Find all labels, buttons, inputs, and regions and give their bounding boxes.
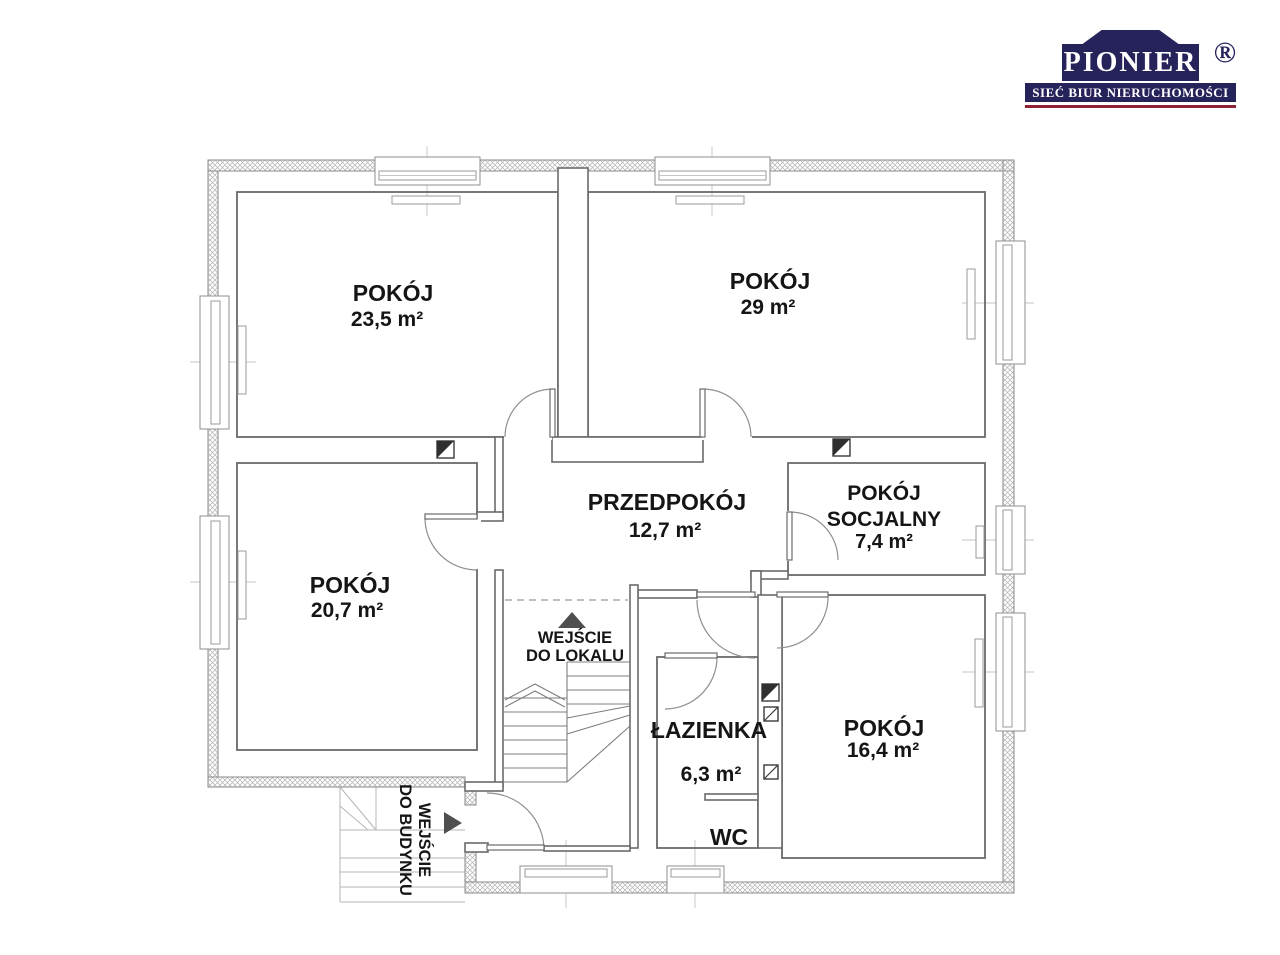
room-labels: POKÓJ 23,5 m² POKÓJ 29 m² POKÓJ 20,7 m² … <box>310 267 941 850</box>
vent-icon <box>764 765 778 779</box>
room-29-area: 29 m² <box>741 296 796 319</box>
floorplan-page: PIONIER ® SIEĆ BIUR NIERUCHOMOŚCI <box>0 0 1280 955</box>
hall-area: 12,7 m² <box>629 519 701 542</box>
building-entrance-label: WEJŚCIE DO BUDYNKU <box>396 784 434 896</box>
building-entrance-arrow-icon <box>444 812 462 834</box>
hall-name: PRZEDPOKÓJ <box>588 488 746 515</box>
bathroom-area: 6,3 m² <box>681 763 742 786</box>
door-arc-room-16-4 <box>777 597 828 648</box>
room-16-4-area: 16,4 m² <box>847 739 919 762</box>
room-20-7-name: POKÓJ <box>310 571 391 598</box>
bathroom-outline <box>657 657 758 848</box>
vent-icon <box>437 441 454 458</box>
unit-entrance-arrow-icon <box>558 612 586 628</box>
building-entrance-line2: DO BUDYNKU <box>396 784 414 896</box>
door-arc-building-entry <box>487 793 544 850</box>
room-16-4-name: POKÓJ <box>844 714 925 741</box>
socjalny-name2: SOCJALNY <box>827 508 941 531</box>
room-20-7-area: 20,7 m² <box>311 599 383 622</box>
bathroom-name: ŁAZIENKA <box>651 717 767 743</box>
vent-icon <box>762 684 779 701</box>
door-arc-room-29 <box>703 389 751 437</box>
room-23-5-name: POKÓJ <box>353 279 434 306</box>
door-arc-room-20-7 <box>425 518 477 570</box>
unit-entrance-line2: DO LOKALU <box>526 647 624 665</box>
room-23-5-area: 23,5 m² <box>351 308 423 331</box>
socjalny-area: 7,4 m² <box>855 531 913 553</box>
building-entrance-line1: WEJŚCIE <box>415 803 434 877</box>
vent-icon <box>833 439 850 456</box>
wc-name: WC <box>710 824 748 850</box>
socjalny-name1: POKÓJ <box>847 481 921 505</box>
floor-plan-drawing: POKÓJ 23,5 m² POKÓJ 29 m² POKÓJ 20,7 m² … <box>0 0 1280 955</box>
door-arc-hall-corridor <box>697 600 755 658</box>
door-arc-room-23-5 <box>505 389 553 437</box>
unit-entrance-line1: WEJŚCIE <box>538 628 612 647</box>
room-29-name: POKÓJ <box>730 267 811 294</box>
door-arc-bathroom <box>665 657 717 709</box>
